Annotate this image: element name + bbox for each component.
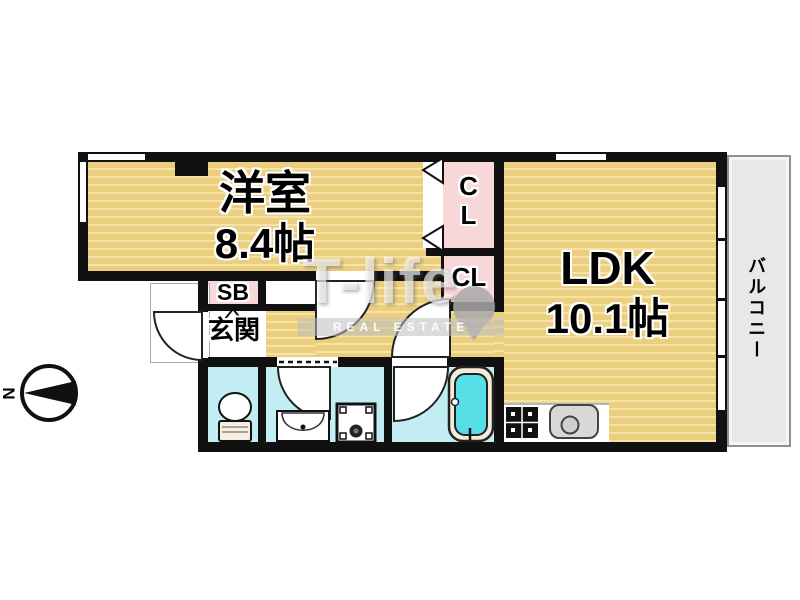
compass-north-label: N	[0, 383, 19, 405]
kitchen-counter	[504, 403, 609, 442]
closet-upper-line2: L	[443, 201, 494, 230]
watermark-logo: T-life	[302, 244, 512, 318]
window-left-wall	[78, 162, 88, 222]
wall-shoebox-right	[258, 281, 266, 310]
shoe-box-label: SB	[208, 280, 258, 306]
floor-plan-canvas: 洋室 8.4帖 LDK 10.1帖 C L CL SB 玄関 バルコニー N T…	[0, 0, 800, 600]
toilet-room-floor	[208, 367, 258, 442]
wall-left-lower-b	[198, 358, 208, 452]
entrance-label: 玄関	[198, 316, 270, 345]
ldk-name: LDK	[495, 243, 720, 295]
washroom-floor	[266, 367, 384, 442]
compass-icon	[22, 366, 76, 420]
window-ldk-top	[556, 152, 606, 162]
bathroom-floor	[392, 367, 494, 442]
window-top-left	[88, 152, 145, 162]
window-tick	[718, 355, 725, 358]
wall-washroom-bathroom-divider	[384, 357, 392, 445]
closet-door-strip	[423, 162, 443, 248]
wall-right-upper	[716, 152, 727, 187]
ldk-area: 10.1帖	[495, 295, 720, 342]
window-tick	[718, 238, 725, 241]
balcony-label: バルコニー	[746, 238, 766, 378]
wall-toilet-washroom-divider	[258, 357, 266, 445]
western-room-name: 洋室	[150, 168, 380, 220]
closet-upper-label: C L	[443, 172, 494, 229]
closet-upper-line1: C	[443, 172, 494, 201]
watermark-tagline: REAL ESTATE	[333, 320, 469, 334]
wall-left-lower-a	[198, 281, 208, 312]
ldk-label: LDK 10.1帖	[495, 243, 720, 342]
wall-hall-bottom-a	[208, 357, 277, 367]
wall-right-lower	[716, 410, 727, 445]
wall-western-room-bottom-left	[78, 271, 316, 281]
watermark-tagline-bar: REAL ESTATE	[298, 318, 504, 336]
wall-ldk-left-lower	[494, 357, 504, 452]
wall-bottom	[198, 442, 727, 452]
